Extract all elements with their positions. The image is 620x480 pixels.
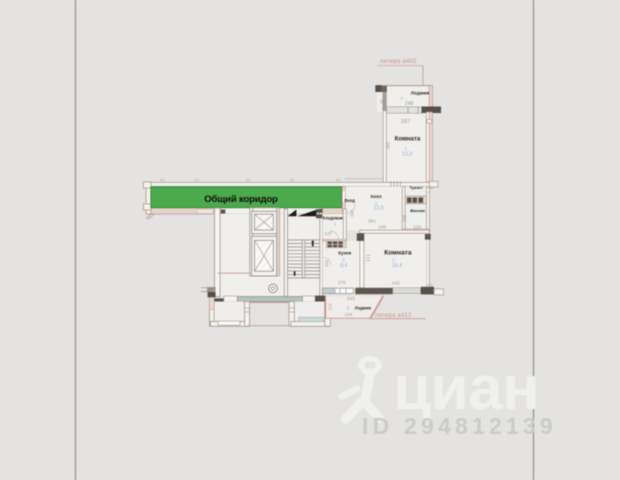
svg-text:445: 445	[392, 280, 400, 286]
svg-text:12,9: 12,9	[374, 205, 384, 211]
svg-text:8,4: 8,4	[340, 263, 347, 269]
svg-text:Лоджия: Лоджия	[355, 305, 372, 310]
svg-text:Комната: Комната	[395, 136, 421, 143]
svg-text:391: 391	[386, 141, 391, 149]
svg-text:110: 110	[327, 303, 332, 311]
svg-text:Общий коридор: Общий коридор	[204, 194, 278, 205]
svg-text:16: 16	[380, 100, 384, 104]
svg-text:134: 134	[413, 225, 421, 231]
svg-text:245: 245	[378, 224, 386, 230]
svg-text:287: 287	[401, 119, 411, 125]
svg-text:ID 294812139: ID 294812139	[362, 413, 557, 439]
svg-text:276: 276	[338, 280, 346, 286]
svg-text:Комната: Комната	[384, 249, 412, 256]
svg-text:13,3: 13,3	[402, 152, 412, 158]
svg-text:144: 144	[345, 312, 353, 317]
svg-text:391: 391	[368, 218, 376, 224]
svg-text:2: 2	[392, 258, 395, 263]
svg-text:142: 142	[426, 282, 433, 287]
svg-text:Лоджия: Лоджия	[411, 90, 430, 96]
svg-text:365: 365	[402, 214, 407, 222]
svg-text:3: 3	[342, 258, 345, 263]
svg-text:Ванная: Ванная	[410, 208, 425, 213]
svg-text:248: 248	[405, 101, 414, 107]
svg-text:1: 1	[404, 146, 407, 151]
svg-text:331: 331	[324, 259, 329, 267]
svg-text:137: 137	[324, 231, 332, 236]
svg-text:Вход: Вход	[345, 198, 356, 203]
svg-text:Туалет: Туалет	[410, 185, 423, 190]
svg-text:343: 343	[347, 296, 355, 302]
svg-text:16,4: 16,4	[392, 263, 402, 269]
svg-text:Кладовая: Кладовая	[323, 216, 344, 221]
svg-text:Кухня: Кухня	[338, 250, 351, 255]
svg-text:литера а402: литера а402	[380, 59, 417, 65]
svg-text:Холл: Холл	[370, 194, 382, 199]
